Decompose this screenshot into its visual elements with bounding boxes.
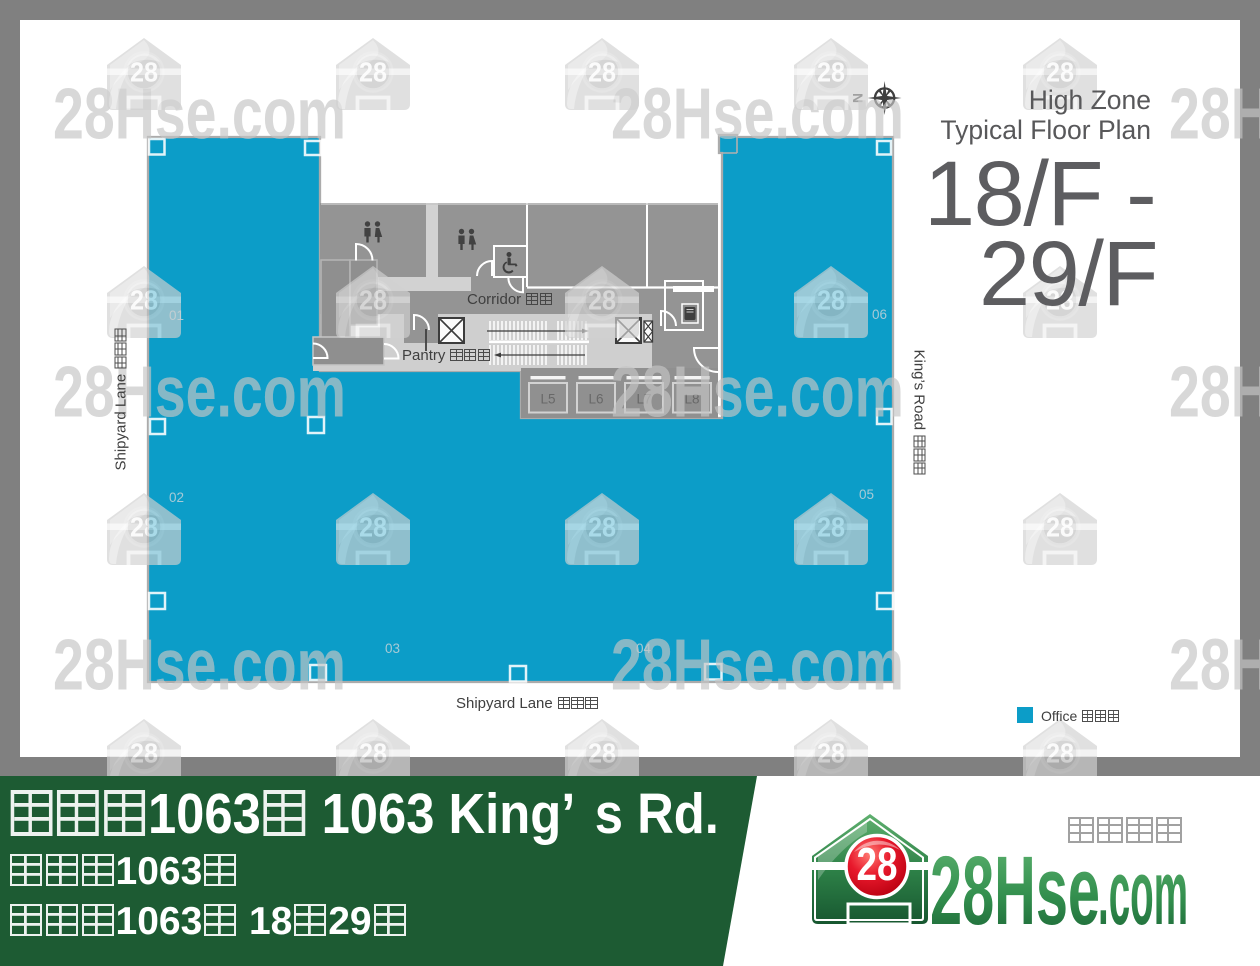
svg-text:28Hse: 28Hse <box>930 836 1100 940</box>
svg-text:28: 28 <box>857 838 898 890</box>
svg-text:.com: .com <box>1098 842 1188 940</box>
